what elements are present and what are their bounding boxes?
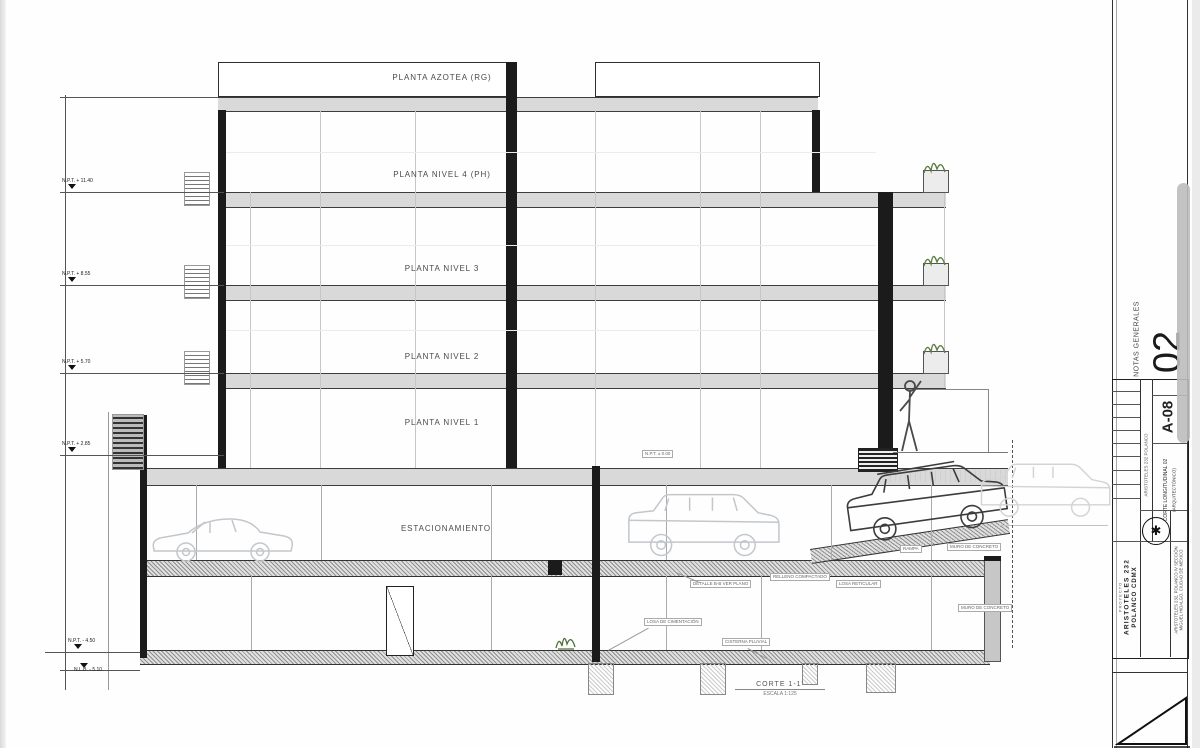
tb-row-line (1112, 430, 1140, 431)
logo-glyph-icon: ✱ (1151, 523, 1162, 539)
elevation-marker: N.P.T. + 5.70 (62, 360, 90, 370)
plant-icon (554, 628, 578, 655)
basement-column-line (666, 575, 667, 650)
section-drawing: N.P.T. + 11.40 N.P.T. + 8.55 N.P.T. + 5.… (0, 0, 1112, 748)
footing (866, 663, 896, 693)
level4-slab (224, 192, 946, 208)
tb-row-line (1112, 404, 1140, 405)
elevation-label: N.P.T. + 11.40 (62, 178, 93, 184)
annotation: N.P.T. ± 0.00 (642, 450, 673, 458)
project-name: ARISTOTELES 232 (1124, 559, 1131, 635)
basement-column (592, 466, 600, 662)
parking-column-line (491, 485, 492, 560)
suv-car-icon (616, 488, 788, 569)
level-line (60, 373, 224, 374)
tb-row-line (1112, 470, 1140, 471)
elevation-marker: N.P.T. + 11.40 (62, 179, 93, 189)
tb-row-line (1112, 417, 1140, 418)
elevation-label: N.L.B. - 5.10 (74, 667, 102, 673)
section-scale: ESCALA 1:125 (735, 691, 825, 697)
tb-row-line (1112, 456, 1140, 457)
level-triangle-icon (74, 644, 82, 649)
plant-icon (921, 336, 949, 361)
floor-label-nivel3: PLANTA NIVEL 3 (405, 264, 479, 273)
plant-icon (921, 155, 949, 180)
notes-label: NOTAS GENERALES (1134, 301, 1141, 377)
firm-name: ARISTOTELES 232 POLANCO (1144, 434, 1149, 497)
sheet-code: A-08 (1160, 401, 1177, 434)
level-line (60, 97, 218, 98)
roof-slab (218, 97, 818, 112)
glazing-line (226, 330, 876, 331)
column-center (506, 62, 517, 468)
annotation: LOSA RETICULAR (836, 580, 881, 588)
level-line (60, 285, 224, 286)
floor-label-azotea: PLANTA AZOTEA (RG) (392, 73, 491, 82)
facade-louver (184, 172, 210, 206)
level-line (45, 652, 140, 653)
person-icon (893, 377, 929, 462)
elevation-label: N.P.T. - 4.50 (68, 638, 95, 644)
dimension-line-right (988, 389, 989, 452)
level-line (60, 192, 224, 193)
elevation-label: N.P.T. + 8.55 (62, 271, 90, 277)
tb-row-line (1112, 391, 1140, 392)
mullion (320, 110, 321, 468)
roof-parapet-right (595, 62, 820, 97)
basement-column-line (251, 575, 252, 650)
facade-louver (184, 351, 210, 385)
drawing-title: CORTE LONGITUDINAL 02 (1163, 459, 1169, 522)
footing (588, 663, 614, 695)
footing (700, 663, 726, 695)
level-triangle-icon (68, 277, 76, 282)
level-triangle-icon (68, 447, 76, 452)
scrollbar-thumb[interactable] (1177, 183, 1190, 443)
level-triangle-icon (68, 365, 76, 370)
north-triangle-icon (1114, 688, 1190, 748)
tb-row-line (1112, 484, 1140, 485)
column-left (218, 110, 226, 468)
retaining-wall-detail (112, 414, 144, 470)
tb-row-line (1152, 443, 1187, 444)
basement-door (386, 586, 414, 656)
parking-column-block (548, 560, 562, 575)
floor-label-nivel1: PLANTA NIVEL 1 (405, 418, 479, 427)
mullion (415, 110, 416, 468)
annotation: CISTERNA PLUVIAL (722, 638, 770, 646)
elevation-marker: N.L.B. - 5.10 (74, 663, 102, 673)
parking-column-line (831, 485, 832, 560)
project-city: POLANCO CDMX (1132, 566, 1138, 627)
glazing-line (226, 152, 876, 153)
glazing-line (226, 245, 876, 246)
sedan-car-icon (148, 508, 296, 569)
elevation-label: N.P.T. + 2.85 (62, 441, 90, 447)
annotation: MURO DE CONCRETO (947, 543, 1001, 551)
floor-label-nivel2: PLANTA NIVEL 2 (405, 352, 479, 361)
elevation-marker: N.P.T. - 4.50 (68, 639, 95, 649)
level-line (60, 455, 224, 456)
level-triangle-icon (68, 184, 76, 189)
annotation: LOSA DE CIMENTACIÓN (644, 618, 702, 626)
annotation: RELLENO COMPACTADO (770, 573, 830, 581)
annotation: MURO DE CONCRETO (958, 604, 1012, 612)
architectural-sheet: N.P.T. + 11.40 N.P.T. + 8.55 N.P.T. + 5.… (0, 0, 1200, 748)
firm-logo: ✱ (1142, 517, 1170, 545)
parking-column-line (321, 485, 322, 560)
drawing-subtitle: (ARQUITECTÓNICO) (1172, 468, 1177, 512)
elevation-marker: N.P.T. + 2.85 (62, 442, 90, 452)
basement-column-line (931, 575, 932, 650)
floor-label-nivel4: PLANTA NIVEL 4 (PH) (393, 170, 491, 179)
level2-slab (224, 373, 946, 389)
project-label: PROYECTO (1118, 582, 1123, 612)
section-title: CORTE 1-1' (735, 681, 825, 690)
plant-icon (921, 248, 949, 273)
column-right (878, 192, 893, 468)
suv-car-street-icon (975, 455, 1113, 532)
basement-outer-wall-line (108, 412, 109, 690)
annotation: RAMPA (900, 545, 922, 553)
tb-divider (1140, 379, 1141, 657)
tb-bottom-line (1112, 672, 1187, 673)
column-right-upper (812, 110, 820, 192)
elevation-marker: N.P.T. + 8.55 (62, 272, 90, 282)
tb-row-line (1112, 498, 1140, 499)
mullion (595, 110, 596, 466)
mullion (760, 110, 761, 468)
basement-column-line (491, 575, 492, 650)
project-address-2: MIGUEL HIDALGO, CIUDAD DE MÉXICO (1179, 549, 1184, 630)
mullion (700, 110, 701, 468)
facade-louver (184, 265, 210, 299)
tb-divider (1170, 510, 1171, 657)
basement-wall-right-cap (984, 556, 1001, 561)
elevation-label: N.P.T. + 5.70 (62, 359, 90, 365)
leader-line (608, 628, 649, 651)
tb-row-line (1112, 443, 1140, 444)
level3-slab (224, 285, 946, 301)
floor-label-estacionamiento: ESTACIONAMIENTO (401, 524, 491, 533)
section-title-block: CORTE 1-1' ESCALA 1:125 (735, 681, 825, 697)
